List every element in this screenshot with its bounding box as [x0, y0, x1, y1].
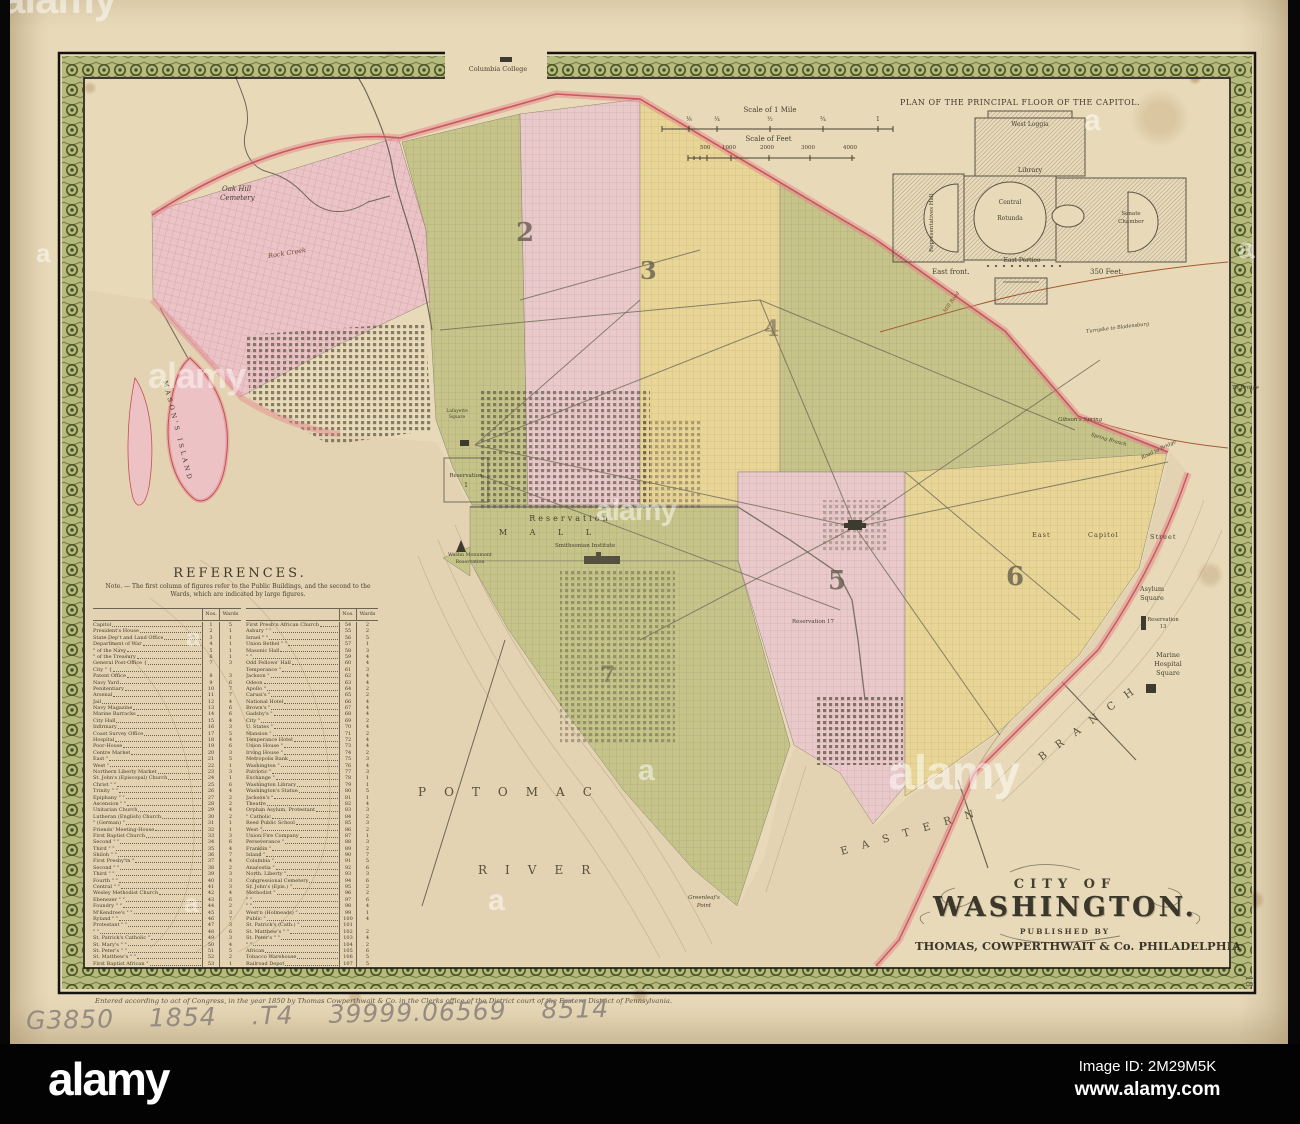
scale-feet-tick: 3000 — [801, 146, 815, 152]
oak-hill-label-2: Cemetery — [220, 195, 255, 202]
alamy-watermark-a: a — [36, 240, 49, 266]
oak-hill-label: Oak Hill — [222, 186, 251, 193]
alamy-watermark: alamy — [888, 750, 1019, 798]
350-feet-label: 350 Feet. — [1090, 269, 1123, 276]
east-capitol-street-street: Street — [1150, 534, 1176, 541]
scale-mile-tick: ½ — [767, 117, 773, 123]
image-id-text: Image ID: 2M29M5K — [1030, 1058, 1265, 1075]
reservation-17-label: Reservation 17 — [792, 620, 834, 626]
ward-number-7: 7 — [600, 662, 615, 688]
plate-number: 18. — [1242, 976, 1251, 990]
mall-label: M A L L — [480, 529, 620, 537]
central-rotunda-label: Central — [975, 200, 1045, 206]
senate-chamber-label: Senate — [1106, 212, 1156, 218]
greenleafs-point-label-2: Point — [672, 904, 736, 910]
reference-row: First Baptist African "531 — [93, 961, 241, 967]
marine-hospital-label: Marine — [1136, 652, 1200, 659]
scale-mile-tick: ¾ — [820, 117, 826, 123]
references-rows-left: Capitol15President's House21State Dep't … — [93, 622, 241, 967]
alamy-watermark-a: a — [638, 756, 654, 786]
library-label: Library — [980, 167, 1080, 174]
smithsonian-label: Smithsonian Institute — [555, 544, 615, 550]
alamy-url: www.alamy.com — [1030, 1079, 1265, 1101]
marine-hospital-label-2: Hospital — [1136, 661, 1200, 668]
references-rows-right: First Presb'n African Church542Asbury " … — [246, 622, 378, 967]
marine-hospital-label-3: Square — [1136, 670, 1200, 677]
map-title-line4: THOMAS, COWPERTHWAIT & Co. PHILADELPHIA — [915, 940, 1215, 952]
references-table-right: Nos. Wards First Presb'n African Church5… — [246, 608, 378, 967]
columbia-college-label: Columbia College — [458, 66, 538, 73]
asylum-square-label: Asylum — [1122, 586, 1182, 593]
reservation-1-label: Reservation — [436, 474, 496, 480]
scale-feet-tick: 2000 — [760, 146, 774, 152]
alamy-watermark-a: a — [1084, 106, 1100, 136]
scale-mile-title: Scale of 1 Mile — [700, 107, 840, 114]
potomac-label: POTOMAC — [418, 786, 610, 799]
to-bridge-label: To Bridge — [1232, 386, 1259, 392]
capitol-plan-title: PLAN OF THE PRINCIPAL FLOOR OF THE CAPIT… — [870, 99, 1170, 107]
ward-number-3: 3 — [640, 256, 657, 285]
central-rotunda-label-2: Rotunda — [975, 216, 1045, 222]
alamy-watermark-a: a — [186, 624, 199, 650]
scale-feet-tick: 4000 — [843, 146, 857, 152]
alamy-watermark-a: a — [1238, 234, 1254, 264]
scale-mile-tick: ¼ — [714, 117, 720, 123]
references-note-line2: Wards, which are indicated by large figu… — [171, 591, 306, 598]
map-title-line1: CITY OF — [985, 878, 1145, 892]
alamy-watermark: alamy — [596, 496, 676, 526]
alamy-footer-bar: alamy Image ID: 2M29M5K www.alamy.com — [0, 1044, 1300, 1124]
reservation-13-label: Reservation — [1128, 618, 1198, 623]
alamy-watermark-a: a — [184, 890, 197, 916]
scale-feet-tick: 500 — [700, 146, 711, 152]
asylum-square-label-2: Square — [1122, 595, 1182, 602]
alamy-watermark: alamy — [148, 358, 245, 394]
nos-column-header: Nos. — [339, 609, 356, 620]
east-portico-label: East Portico — [982, 258, 1062, 264]
photo-right-edge — [1288, 0, 1300, 1124]
references-table-header: Nos. Wards — [93, 608, 241, 621]
references-table-left: Nos. Wards Capitol15President's House21S… — [93, 608, 241, 967]
reservation-13-number: 13 — [1128, 625, 1198, 630]
map-title-line2: WASHINGTON. — [925, 894, 1205, 922]
east-capitol-street-capitol: Capitol — [1088, 532, 1119, 539]
gibsons-spring-label: Gibson's Spring — [1058, 418, 1102, 424]
lafayette-square-label: Lafayette — [432, 410, 482, 415]
river-label: RIVER — [478, 864, 608, 877]
scale-feet-tick: 1000 — [722, 146, 736, 152]
alamy-watermark-a: a — [488, 886, 504, 916]
references-table-header: Nos. Wards — [246, 608, 378, 621]
monument-label: Washn Monument — [435, 553, 505, 558]
references-note: Note. — The first column of figures refe… — [88, 583, 388, 598]
scale-feet-title: Scale of Feet — [706, 136, 831, 143]
wards-column-header: Wards — [356, 609, 378, 620]
map-title-line3: PUBLISHED BY — [985, 928, 1145, 936]
alamy-watermark: alamy — [2, 0, 116, 20]
image-id-block: Image ID: 2M29M5K www.alamy.com — [1030, 1058, 1265, 1101]
ward-number-2: 2 — [516, 218, 534, 248]
east-capitol-street-east: East — [1032, 532, 1051, 539]
alamy-logo: alamy — [48, 1052, 168, 1106]
references-note-line1: Note. — The first column of figures refe… — [105, 583, 370, 590]
ward-number-6: 6 — [1006, 562, 1024, 592]
west-loggia-label: West Loggia — [980, 122, 1080, 128]
scale-mile-tick: ⅛ — [686, 117, 692, 123]
wards-column-header: Wards — [219, 609, 241, 620]
scale-mile-tick: 1 — [876, 117, 880, 123]
reference-row: Railroad Depot1075 — [246, 961, 378, 967]
ward-number-4: 4 — [764, 316, 779, 342]
east-front-label: East front. — [932, 269, 970, 276]
greenleafs-point-label: Greenleaf's — [672, 896, 736, 902]
photo-left-edge — [0, 0, 10, 1124]
stock-photo-page: Columbia College Oak Hill Cemetery Rock … — [0, 0, 1300, 1124]
representatives-hall-label: Representatives Hall — [930, 194, 936, 252]
monument-label-2: Reservation — [435, 560, 505, 565]
senate-chamber-label-2: Chamber — [1106, 220, 1156, 226]
reservation-1-number: 1 — [436, 483, 496, 489]
nos-column-header: Nos. — [202, 609, 219, 620]
references-heading: REFERENCES. — [100, 566, 380, 581]
lafayette-square-label-2: Square — [432, 416, 482, 421]
ward-number-5: 5 — [828, 566, 846, 596]
